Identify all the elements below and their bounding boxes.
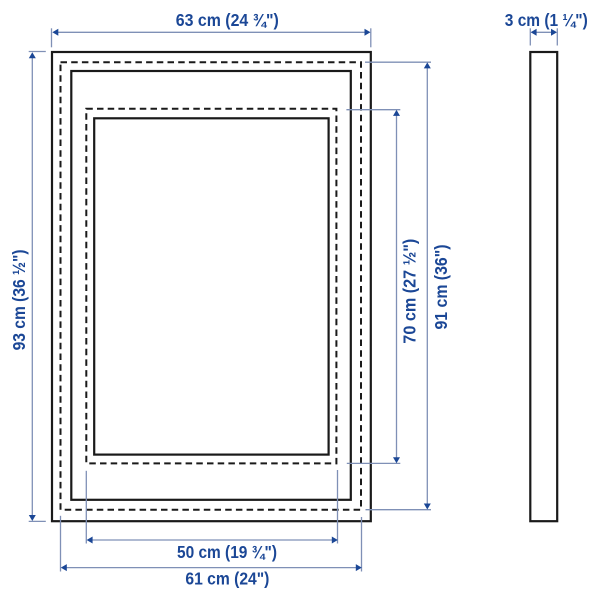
svg-text:50 cm (19 ¾"): 50 cm (19 ¾")	[177, 542, 277, 562]
svg-text:93 cm (36 ½"): 93 cm (36 ½")	[9, 249, 29, 350]
svg-text:70 cm (27 ½"): 70 cm (27 ½")	[400, 239, 420, 344]
svg-text:3 cm (1 ¼"): 3 cm (1 ¼")	[505, 10, 588, 30]
svg-text:63 cm (24 ¾"): 63 cm (24 ¾")	[176, 10, 279, 30]
svg-text:61 cm (24"): 61 cm (24")	[185, 569, 269, 589]
svg-text:91 cm (36"): 91 cm (36")	[431, 244, 451, 329]
